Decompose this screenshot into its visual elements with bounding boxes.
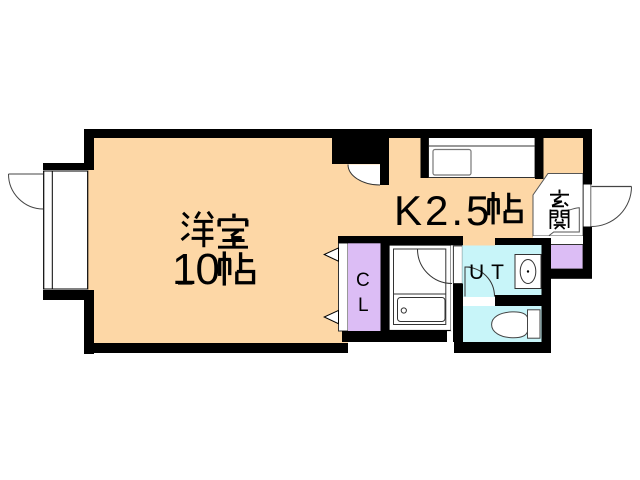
svg-text:UT: UT xyxy=(469,261,511,284)
svg-text:10: 10 xyxy=(172,245,219,294)
svg-text:C: C xyxy=(356,270,370,291)
svg-text:K2.5: K2.5 xyxy=(394,187,492,234)
svg-text:L: L xyxy=(358,295,369,316)
